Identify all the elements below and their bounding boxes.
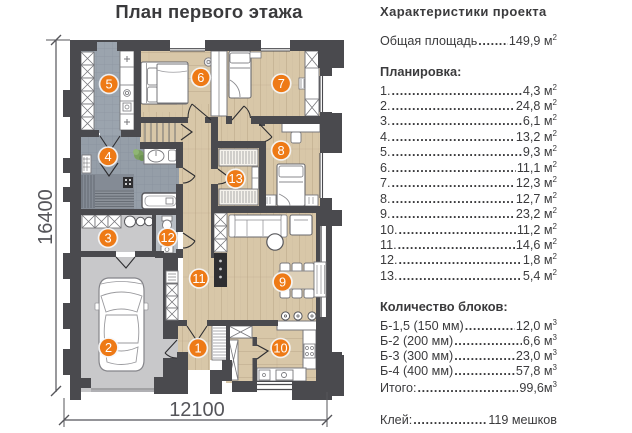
svg-text:4: 4 xyxy=(104,149,111,164)
svg-text:12: 12 xyxy=(160,230,174,245)
svg-text:7: 7 xyxy=(278,76,285,91)
svg-text:11: 11 xyxy=(192,271,205,286)
svg-text:2: 2 xyxy=(105,340,112,355)
svg-text:6: 6 xyxy=(197,70,204,85)
svg-text:9: 9 xyxy=(279,274,286,289)
svg-text:16400: 16400 xyxy=(35,189,57,245)
svg-text:12100: 12100 xyxy=(169,399,225,421)
svg-text:8: 8 xyxy=(277,143,284,158)
svg-text:13: 13 xyxy=(228,171,242,186)
svg-text:10: 10 xyxy=(273,340,287,355)
svg-text:1: 1 xyxy=(194,340,201,355)
svg-text:3: 3 xyxy=(104,230,111,245)
svg-text:5: 5 xyxy=(105,76,112,91)
